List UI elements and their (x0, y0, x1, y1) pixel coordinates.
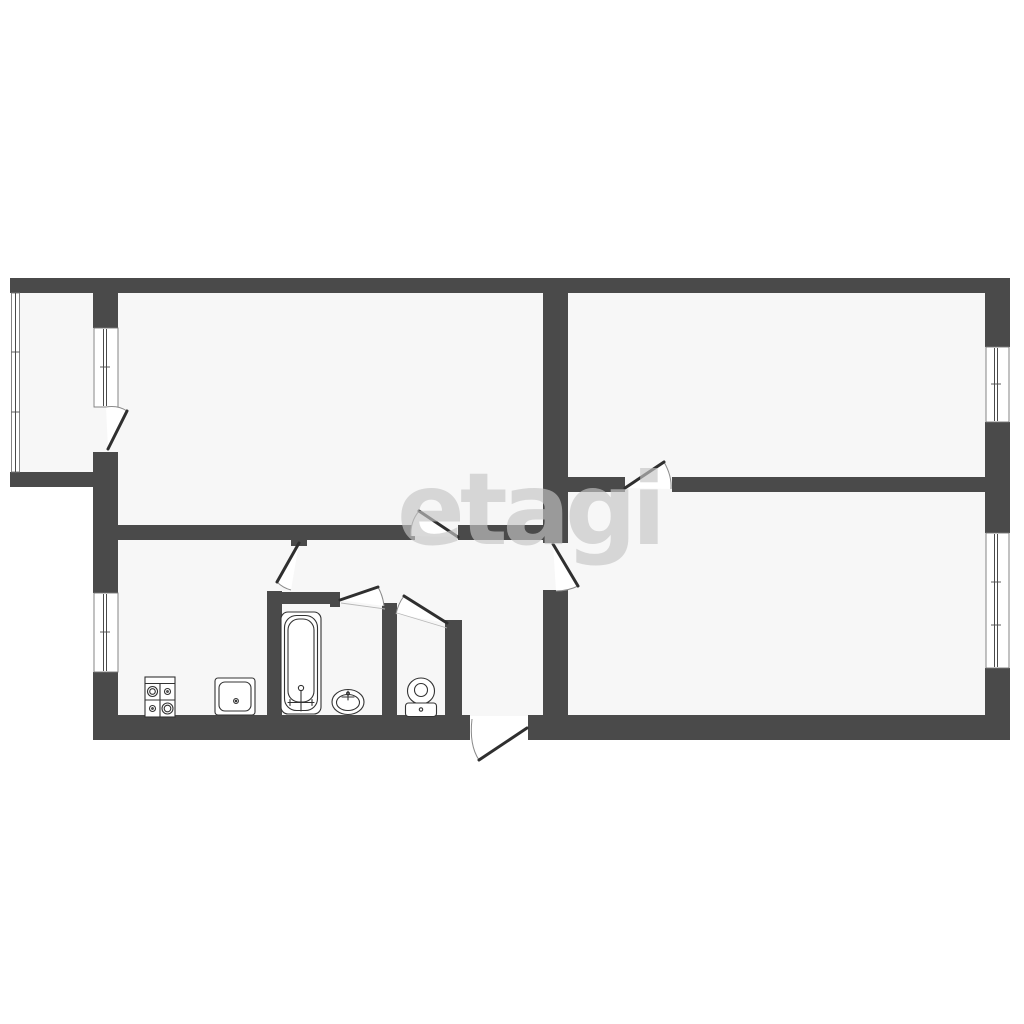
wall-hall-left (118, 525, 415, 540)
floor-plan (0, 0, 1024, 1024)
stove-icon (145, 677, 175, 717)
wall-bathroom-toilet (382, 603, 397, 715)
wall-central-lower (543, 590, 568, 715)
wall-divider-right (672, 477, 985, 492)
wall-right-upper (985, 293, 1010, 347)
wall-left-lower (93, 672, 118, 715)
toilet-icon (406, 678, 437, 717)
balcony-floor (20, 293, 93, 472)
wall-hall-right (458, 525, 566, 540)
wall-left-upper (93, 293, 118, 328)
floor-plan-canvas: etagi (0, 0, 1024, 1024)
wall-balcony-bottom (10, 472, 93, 487)
balcony-glazing (12, 293, 20, 472)
wall-bathroom-left (267, 591, 282, 715)
wall-bathroom-door-jamb (330, 592, 340, 607)
kitchen-sink-icon (215, 678, 255, 715)
wall-bottom-left (93, 715, 470, 740)
wall-toilet-right (445, 620, 462, 715)
washbasin-icon (332, 690, 364, 715)
window-balcony-door (94, 328, 118, 407)
wall-right-middle (985, 422, 1010, 533)
window-kitchen (94, 593, 118, 672)
window-top-right-room (986, 347, 1009, 422)
wall-bottom-right (528, 715, 1010, 740)
wall-bathroom-top (267, 592, 340, 604)
bathtub-icon (281, 612, 321, 714)
wall-central-upper (543, 293, 568, 543)
window-bottom-right-room (986, 533, 1009, 668)
wall-divider-left (543, 477, 625, 492)
floors (20, 288, 998, 725)
wall-right-lower (985, 668, 1010, 740)
wall-left-middle (93, 452, 118, 593)
wall-top (10, 278, 1010, 293)
